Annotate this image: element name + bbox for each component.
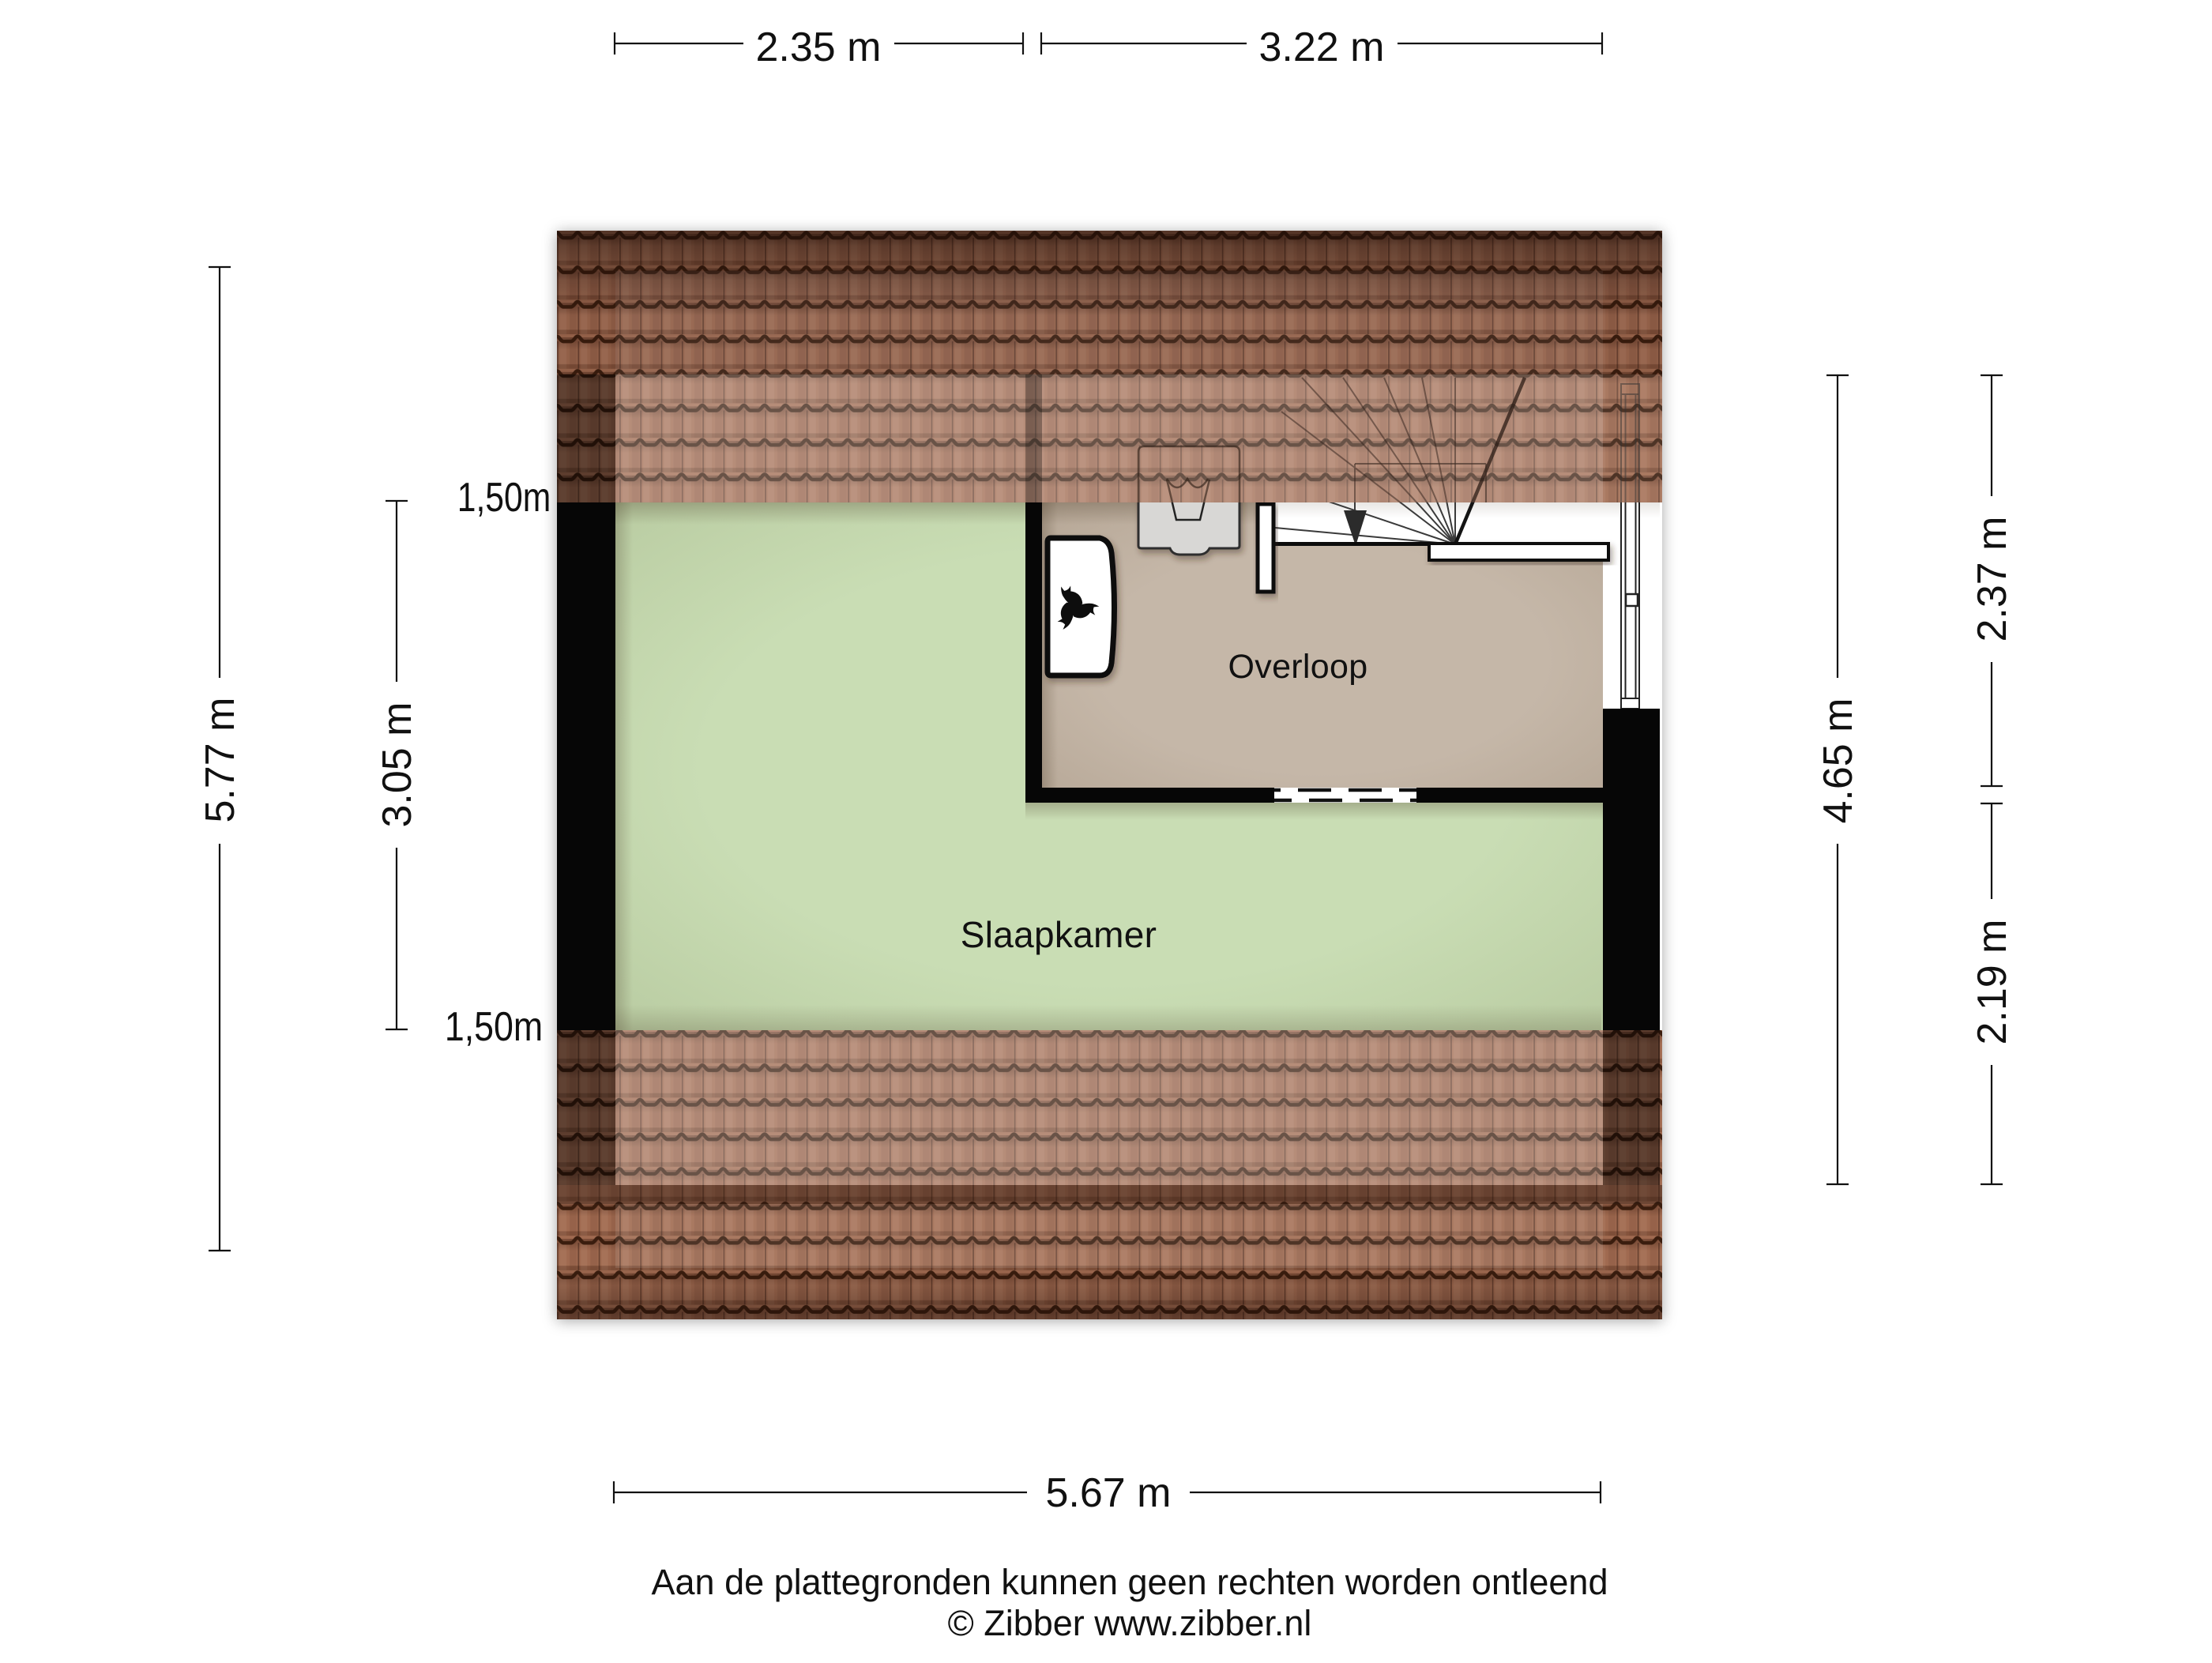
svg-text:2.37 m: 2.37 m [1969,517,2015,642]
svg-text:1,50m: 1,50m [457,475,551,521]
svg-text:3.05 m: 3.05 m [374,702,420,828]
svg-text:1,50m: 1,50m [445,1004,543,1050]
svg-text:Overloop: Overloop [1228,648,1368,686]
svg-text:3.22 m: 3.22 m [1259,24,1385,70]
svg-text:Aan de plattegronden kunnen ge: Aan de plattegronden kunnen geen rechten… [652,1562,1608,1602]
svg-text:2.19 m: 2.19 m [1969,920,2015,1045]
svg-text:5.67 m: 5.67 m [1046,1470,1172,1516]
svg-text:Slaapkamer: Slaapkamer [961,914,1157,955]
svg-text:5.77 m: 5.77 m [197,698,243,823]
svg-text:© Zibber www.zibber.nl: © Zibber www.zibber.nl [948,1603,1312,1643]
svg-text:2.35 m: 2.35 m [756,24,882,70]
svg-text:4.65 m: 4.65 m [1815,698,1861,824]
